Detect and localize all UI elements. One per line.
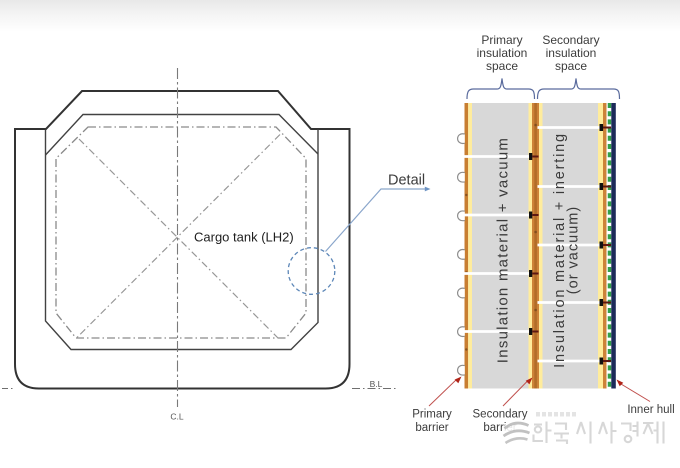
svg-text:Primary: Primary [481, 33, 522, 47]
svg-text:(or vacuum): (or vacuum) [566, 206, 582, 294]
svg-text:Primary: Primary [412, 409, 452, 421]
svg-text:Detail: Detail [388, 173, 425, 189]
svg-text:Secondary: Secondary [542, 33, 599, 47]
svg-text:C.L: C.L [170, 412, 184, 422]
svg-text:barrier: barrier [415, 422, 448, 434]
svg-text:insulation: insulation [546, 46, 597, 60]
svg-text:Inner hull: Inner hull [627, 404, 674, 416]
svg-text:Cargo tank (LH2): Cargo tank (LH2) [194, 230, 294, 245]
svg-text:space: space [486, 59, 518, 73]
svg-text:insulation: insulation [477, 46, 528, 60]
svg-text:space: space [555, 59, 587, 73]
svg-text:Insulation material + vacuum: Insulation material + vacuum [494, 137, 511, 363]
svg-text:B.L: B.L [370, 379, 383, 389]
